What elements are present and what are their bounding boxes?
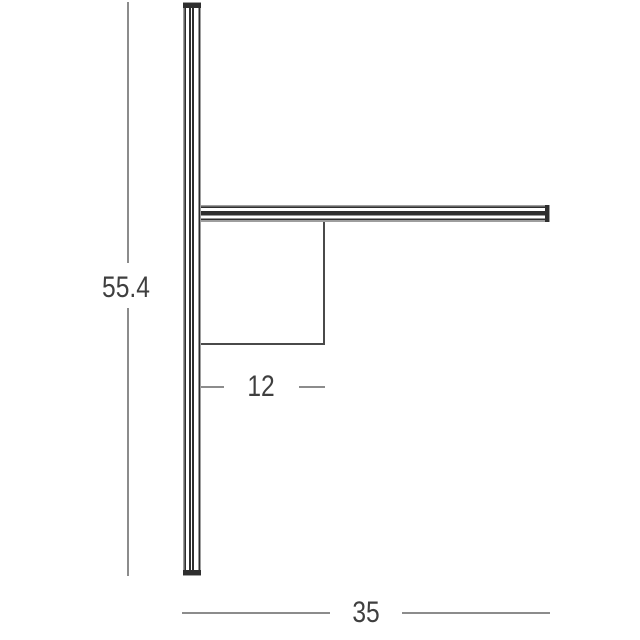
depth-dimension-line-right	[299, 386, 325, 388]
horizontal-profile-end-cap	[545, 205, 550, 222]
vertical-profile	[183, 2, 201, 576]
depth-dimension-label: 12	[247, 372, 274, 402]
vertical-profile-top-cap	[183, 2, 201, 8]
dimension-diagram: 55.4 12 35	[0, 0, 640, 640]
height-dimension-line-lower	[127, 308, 129, 576]
depth-dimension-line-left	[201, 386, 224, 388]
height-dimension-label: 55.4	[102, 273, 150, 303]
width-dimension-label: 35	[352, 598, 379, 628]
driver-box-outline	[201, 222, 325, 345]
vertical-profile-bottom-cap	[183, 570, 201, 576]
horizontal-profile	[201, 205, 550, 222]
height-dimension-line-upper	[127, 2, 129, 263]
width-dimension-line-left	[182, 612, 330, 614]
width-dimension-line-right	[402, 612, 550, 614]
